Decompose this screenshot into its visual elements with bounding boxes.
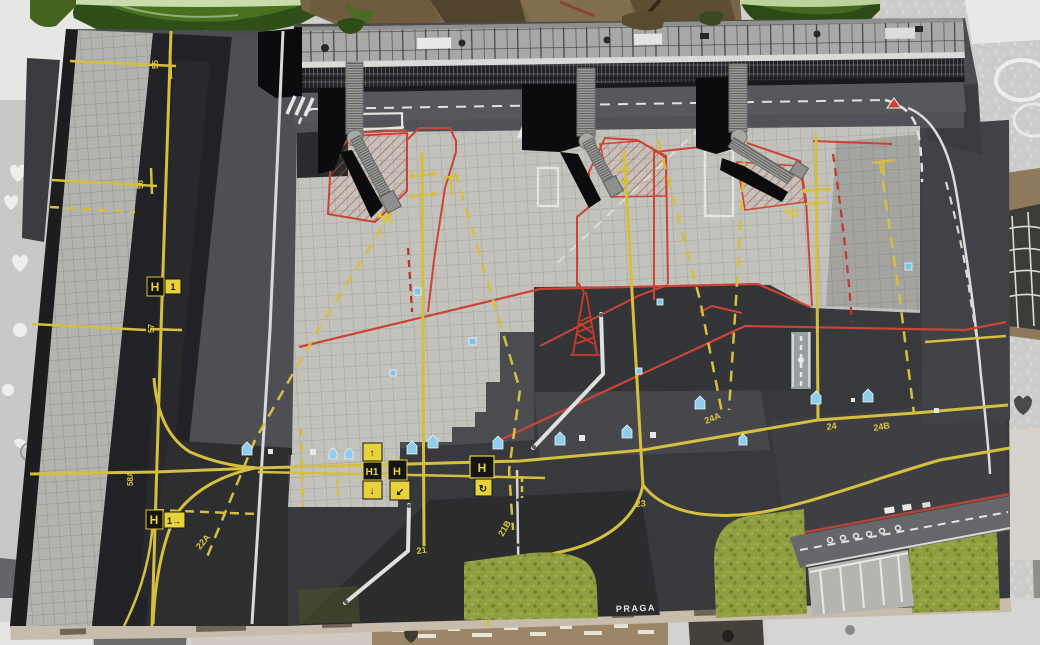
svg-text:H1: H1: [366, 467, 379, 478]
svg-text:56: 56: [136, 180, 145, 189]
svg-text:21: 21: [416, 545, 427, 556]
svg-text:24: 24: [826, 421, 837, 432]
svg-text:↑: ↑: [370, 448, 375, 459]
svg-text:PRAGA: PRAGA: [616, 603, 656, 614]
svg-text:57: 57: [147, 324, 156, 333]
svg-text:1→: 1→: [167, 516, 181, 526]
svg-text:55: 55: [151, 60, 160, 69]
svg-text:↻: ↻: [479, 484, 487, 495]
svg-text:H: H: [478, 461, 487, 475]
svg-text:↙: ↙: [396, 487, 404, 498]
svg-text:58A: 58A: [126, 471, 135, 486]
svg-text:H: H: [151, 280, 160, 294]
svg-text:↓: ↓: [370, 486, 375, 497]
svg-text:H: H: [150, 513, 159, 527]
svg-text:1: 1: [170, 282, 175, 292]
svg-text:H: H: [393, 466, 401, 478]
svg-text:23: 23: [635, 498, 646, 509]
